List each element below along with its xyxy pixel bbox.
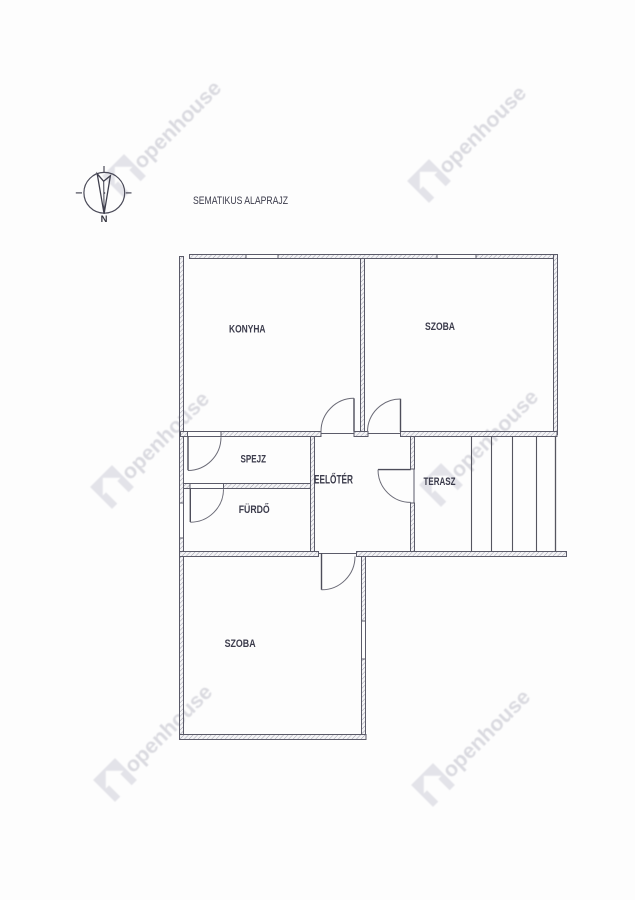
svg-text:N: N [101,214,108,225]
svg-text:SZOBA: SZOBA [425,321,455,333]
svg-text:TERASZ: TERASZ [424,476,456,488]
svg-text:FÜRDŐ: FÜRDŐ [239,503,270,516]
svg-text:SEMATIKUS ALAPRAJZ: SEMATIKUS ALAPRAJZ [193,195,288,207]
svg-text:EELŐTÉR: EELŐTÉR [314,473,353,486]
svg-text:SPEJZ: SPEJZ [241,454,267,466]
svg-text:SZOBA: SZOBA [225,638,256,650]
svg-text:KONYHA: KONYHA [229,324,266,336]
